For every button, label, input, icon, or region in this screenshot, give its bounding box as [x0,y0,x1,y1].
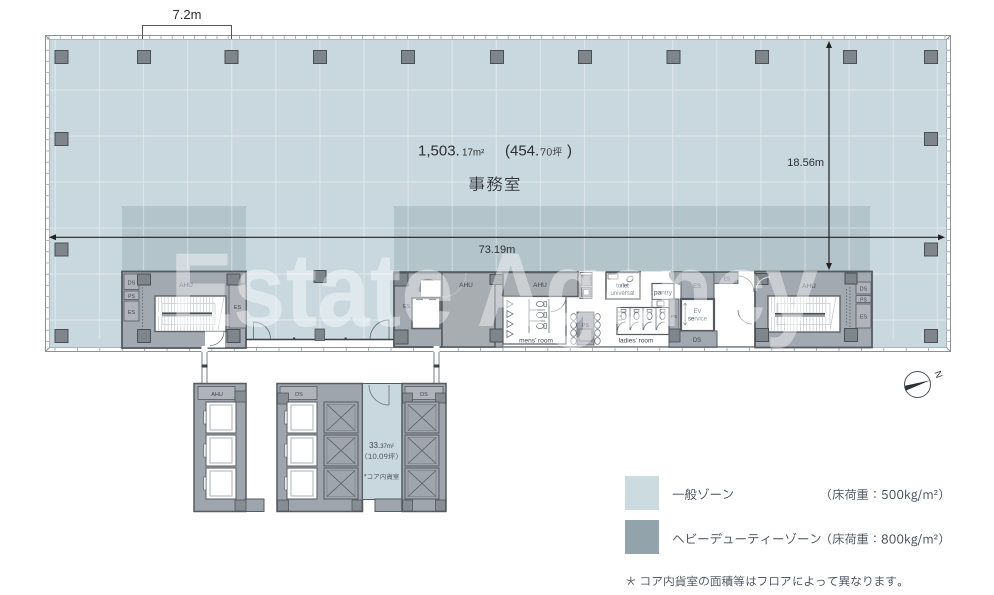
svg-text:ES: ES [860,315,868,321]
svg-text:DS: DS [860,287,868,293]
svg-text:DS: DS [128,281,136,287]
svg-text:PS: PS [128,294,135,300]
svg-text:PS: PS [860,298,867,304]
svg-text:18.56m: 18.56m [787,157,824,169]
svg-text:ES: ES [128,310,136,316]
svg-text:DS: DS [420,392,428,398]
svg-text:7.2m: 7.2m [173,7,202,22]
svg-text:DS: DS [295,392,303,398]
svg-text:N: N [932,370,945,380]
svg-text:AHU: AHU [211,392,223,398]
svg-text:Estate Agency: Estate Agency [170,232,818,349]
